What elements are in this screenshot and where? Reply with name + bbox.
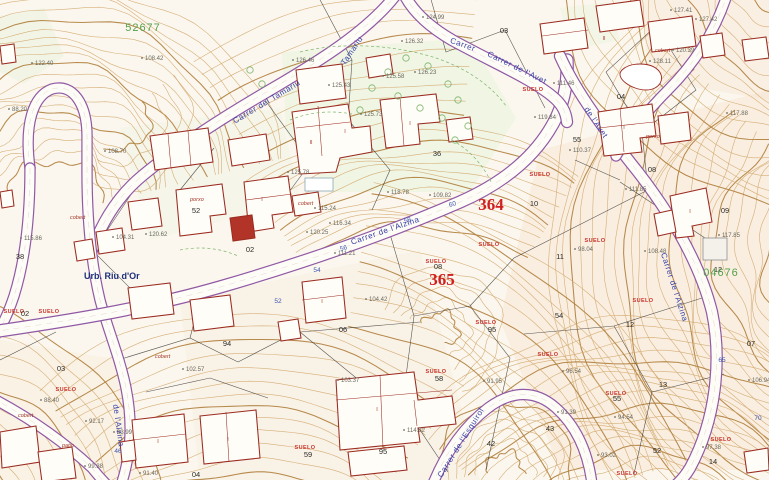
spot-elevation-point: [387, 191, 389, 193]
spot-elevation-point: [748, 379, 750, 381]
spot-elevation-point: [670, 9, 672, 11]
building: [74, 239, 95, 261]
suelo-label: SUELO: [711, 437, 732, 443]
building: [150, 128, 213, 170]
spot-elevation-point: [287, 171, 289, 173]
building: [700, 33, 725, 58]
parcel-number: 07: [747, 339, 755, 348]
building: [132, 414, 188, 468]
parcel-number: 03: [500, 26, 508, 35]
swimming-pool: [305, 178, 333, 191]
building-annotation: patio: [61, 443, 74, 449]
parcel-number: 95: [488, 325, 496, 334]
building: [200, 410, 260, 464]
spot-elevation-point: [625, 188, 627, 190]
building: [658, 112, 691, 144]
spot-elevation: 92.17: [89, 419, 105, 425]
spot-elevation-point: [104, 150, 106, 152]
floor-mark: II: [602, 36, 606, 42]
spot-elevation: 125.43: [332, 83, 351, 89]
spot-elevation: 88.40: [44, 398, 60, 404]
address-number: 46: [114, 448, 122, 455]
spot-elevation-point: [139, 472, 141, 474]
spot-elevation-point: [365, 298, 367, 300]
spot-elevation-point: [534, 116, 536, 118]
spot-elevation: 119.84: [538, 115, 557, 121]
spot-elevation-point: [403, 429, 405, 431]
building: [742, 37, 769, 61]
spot-elevation: 127.42: [699, 17, 718, 23]
address-number: 65: [718, 357, 726, 364]
block-number: 364: [478, 195, 504, 214]
parcel-number: 52: [192, 206, 200, 215]
suelo-label: SUELO: [479, 242, 500, 248]
spot-elevation: 116.34: [333, 221, 352, 227]
spot-elevation-point: [483, 380, 485, 382]
building: [596, 0, 644, 32]
building: [228, 134, 270, 166]
spot-elevation-point: [718, 234, 720, 236]
spot-elevation: 127.41: [674, 8, 693, 14]
building-annotation: porxo: [645, 134, 660, 140]
suelo-label: SUELO: [39, 309, 60, 315]
spot-elevation: 93.02: [601, 453, 617, 459]
parcel-number: 59: [304, 450, 312, 459]
spot-elevation: 126.46: [296, 58, 315, 64]
spot-elevation: 91.40: [143, 471, 159, 477]
spot-elevation-point: [562, 370, 564, 372]
building: [190, 295, 234, 331]
parcel-number: 52: [653, 446, 661, 455]
parcel-number: 04: [617, 92, 625, 101]
spot-elevation: 125.73: [364, 112, 383, 118]
spot-elevation: 103.37: [341, 378, 360, 384]
spot-elevation-point: [85, 420, 87, 422]
spot-elevation: 108.70: [108, 149, 127, 155]
spot-elevation-point: [597, 454, 599, 456]
spot-elevation: 102.57: [186, 367, 205, 373]
spot-elevation-point: [644, 250, 646, 252]
spot-elevation-point: [40, 399, 42, 401]
spot-elevation: 126.23: [418, 70, 437, 76]
spot-elevation-point: [422, 16, 424, 18]
spot-elevation: 104.42: [369, 297, 388, 303]
spot-elevation: 115.86: [24, 236, 43, 242]
spot-elevation-point: [401, 40, 403, 42]
spot-elevation: 110.37: [573, 148, 592, 154]
suelo-label: SUELO: [538, 352, 559, 358]
spot-elevation-point: [414, 71, 416, 73]
spot-elevation: 117.85: [722, 233, 741, 239]
parcel-number: 09: [721, 206, 729, 215]
building: [230, 215, 255, 241]
building: [654, 210, 676, 236]
parcel-number: 02: [246, 245, 254, 254]
spot-elevation-point: [145, 233, 147, 235]
building: [96, 228, 125, 254]
spot-elevation: 109.82: [433, 193, 452, 199]
spot-elevation-point: [614, 416, 616, 418]
parcel-number: 14: [709, 457, 717, 466]
spot-elevation: 115.24: [318, 206, 337, 212]
spot-elevation-point: [112, 236, 114, 238]
parcel-number: 36: [433, 149, 441, 158]
parcel-number: 55: [573, 135, 581, 144]
floor-mark: II: [309, 140, 313, 146]
building: [38, 447, 76, 480]
spot-elevation-point: [574, 248, 576, 250]
parcel-number: 38: [16, 252, 24, 261]
spot-elevation-point: [8, 108, 10, 110]
sector-code: 04676: [703, 267, 739, 279]
building: [0, 426, 40, 468]
spot-elevation: 106.94: [752, 378, 769, 384]
block-number: 365: [429, 270, 455, 289]
building: [648, 16, 696, 52]
spot-elevation-point: [553, 82, 555, 84]
parcel-number: 08: [648, 165, 656, 174]
parcel-number: 54: [555, 311, 563, 320]
parcel-number: 03: [57, 364, 65, 373]
spot-elevation: 94.54: [618, 415, 634, 421]
spot-elevation: 104.31: [116, 235, 135, 241]
spot-elevation: 99.38: [88, 464, 104, 470]
parcel-number: 95: [379, 447, 387, 456]
address-number: 54: [313, 267, 321, 274]
spot-elevation: 114.82: [407, 428, 426, 434]
building: [446, 117, 473, 142]
spot-elevation: 120.62: [149, 232, 168, 238]
spot-elevation-point: [382, 75, 384, 77]
spot-elevation-point: [141, 57, 143, 59]
parcel-number: 11: [556, 252, 564, 261]
spot-elevation: 96.54: [566, 369, 582, 375]
spot-elevation: 128.11: [653, 59, 672, 65]
building-annotation: porxo: [189, 197, 204, 203]
suelo-label: SUELO: [530, 172, 551, 178]
spot-elevation-point: [702, 446, 704, 448]
urbanization-label: Urb. Riu d'Or: [84, 271, 140, 281]
suelo-label: SUELO: [585, 238, 606, 244]
building: [302, 277, 346, 323]
spot-elevation-point: [182, 368, 184, 370]
spot-elevation: 122.40: [35, 61, 54, 67]
spot-elevation: 91.39: [561, 410, 577, 416]
parcel-number: 13: [659, 380, 667, 389]
spot-elevation: 88.20: [12, 107, 28, 113]
spot-elevation: 120.25: [310, 230, 329, 236]
parcel-number: 42: [487, 439, 495, 448]
spot-elevation: 108.42: [145, 56, 164, 62]
building-annotation: cobert: [155, 354, 171, 360]
spot-elevation-point: [672, 49, 674, 51]
spot-elevation-point: [557, 411, 559, 413]
spot-elevation-point: [569, 149, 571, 151]
spot-elevation-point: [306, 231, 308, 233]
building: [128, 283, 174, 319]
spot-elevation: 111.85: [629, 187, 647, 193]
parcel-number: 04: [192, 470, 200, 479]
spot-elevation-point: [329, 222, 331, 224]
spot-elevation: 97.38: [706, 445, 722, 451]
parcel-number: 12: [626, 320, 634, 329]
suelo-label: SUELO: [56, 387, 77, 393]
spot-elevation-point: [328, 84, 330, 86]
spot-elevation-point: [649, 60, 651, 62]
building: [744, 448, 769, 473]
address-number: 70: [754, 415, 762, 422]
spot-elevation: 124.99: [426, 15, 445, 21]
spot-elevation: 117.88: [730, 111, 749, 117]
building-annotation: cobert: [18, 413, 34, 419]
spot-elevation-point: [429, 194, 431, 196]
spot-elevation: 118.78: [391, 190, 410, 196]
building-annotation: cobert: [655, 48, 671, 54]
building-annotation: cobert: [70, 215, 86, 221]
building: [128, 198, 162, 230]
parcel-number: 94: [223, 339, 231, 348]
spot-elevation-point: [113, 431, 115, 433]
suelo-label: SUELO: [617, 471, 638, 477]
map-canvas[interactable]: 127.41124.99126.32125.58126.23125.43125.…: [0, 0, 769, 480]
spot-elevation: 125.78: [291, 170, 310, 176]
spot-elevation-point: [314, 207, 316, 209]
building: [0, 44, 16, 64]
spot-elevation-point: [31, 62, 33, 64]
auxiliary-structure: [703, 238, 727, 260]
spot-elevation: 126.32: [405, 39, 424, 45]
spot-elevation: 91.95: [487, 379, 503, 385]
spot-elevation-point: [20, 237, 22, 239]
spot-elevation-point: [292, 59, 294, 61]
parcel-number: 55: [613, 394, 621, 403]
map-viewport[interactable]: 127.41124.99126.32125.58126.23125.43125.…: [0, 0, 769, 480]
spot-elevation-point: [337, 379, 339, 381]
building: [540, 18, 588, 54]
spot-elevation-point: [726, 112, 728, 114]
spot-elevation-point: [84, 465, 86, 467]
parcel-number: 02: [21, 309, 29, 318]
building-annotation: cobert: [298, 201, 314, 207]
building: [0, 190, 14, 208]
parcel-number: 06: [339, 325, 347, 334]
spot-elevation: 125.58: [386, 74, 405, 80]
spot-elevation-point: [360, 113, 362, 115]
spot-elevation: 98.04: [578, 247, 594, 253]
address-number: 52: [274, 298, 282, 305]
spot-elevation: 111.46: [557, 81, 575, 87]
building: [278, 319, 301, 341]
spot-elevation: 120.39: [676, 48, 695, 54]
spot-elevation-point: [695, 18, 697, 20]
sector-code: 52677: [125, 22, 161, 34]
suelo-label: SUELO: [633, 298, 654, 304]
parcel-number: 58: [435, 374, 443, 383]
parcel-number: 43: [546, 424, 554, 433]
suelo-label: SUELO: [523, 87, 544, 93]
spot-elevation-point: [334, 252, 336, 254]
parcel-number: 10: [530, 199, 538, 208]
